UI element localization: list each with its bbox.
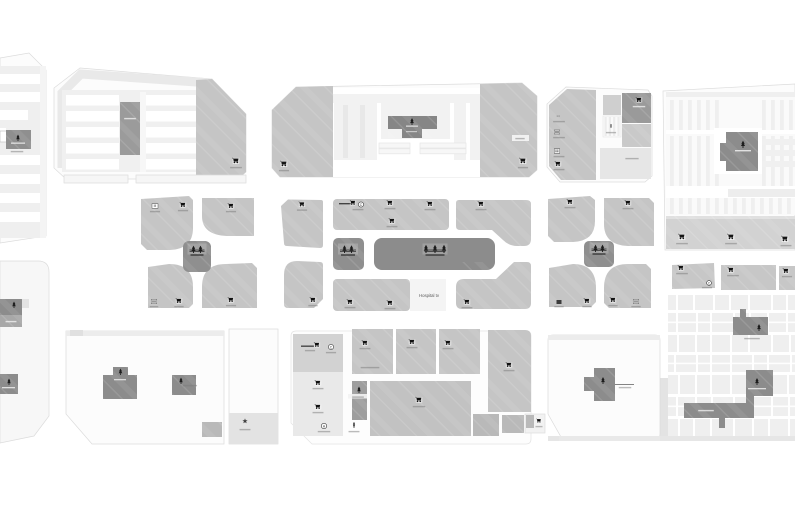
svg-text:M: M	[154, 204, 157, 208]
svg-text:Hospital tv: Hospital tv	[419, 293, 440, 298]
svg-text:14: 14	[556, 114, 560, 118]
